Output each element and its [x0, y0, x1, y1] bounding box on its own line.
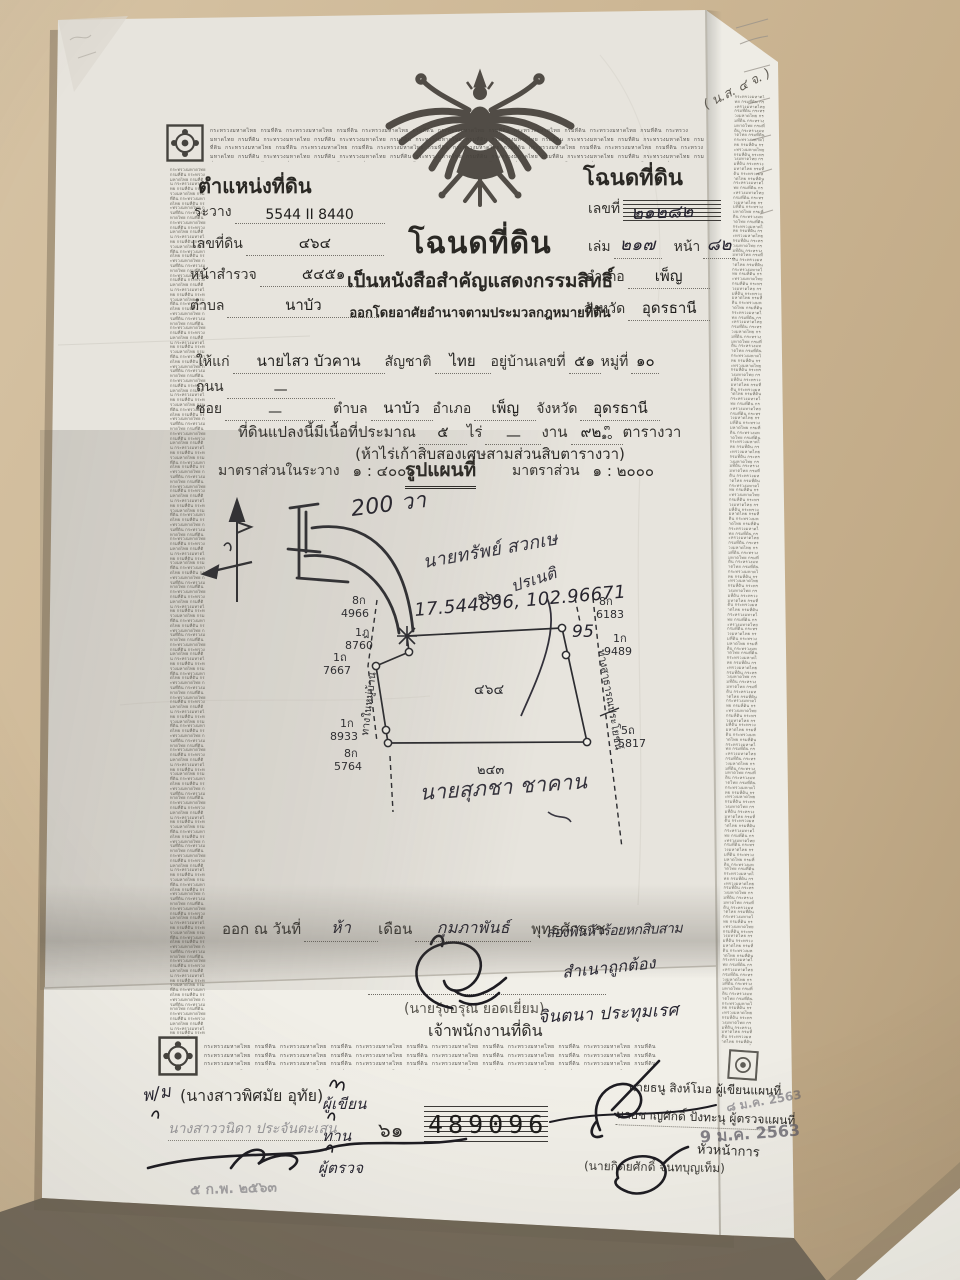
- marker-code: 8ก: [599, 595, 613, 608]
- writer-role: ผู้เขียน: [322, 1092, 367, 1116]
- map-neighbor-bottom: นายสุภชา ชาคาน: [419, 769, 589, 806]
- parcel-no-label: เลขที่ดิน: [192, 233, 246, 256]
- wa-fraction: ๓๑๐: [601, 424, 612, 441]
- rawang-label: ระวาง: [194, 201, 235, 224]
- tambon-label: ตำบล: [325, 398, 370, 421]
- issue-month-label: เดือน: [378, 917, 415, 942]
- deed-no-label: เลขที่: [588, 198, 623, 221]
- wa-frac-den: ๑๐: [601, 433, 612, 442]
- grant-to-label: ให้แก่: [196, 351, 233, 374]
- volume-label: เล่ม: [588, 236, 614, 259]
- position-block-title: ตำแหน่งที่ดิน: [198, 170, 312, 202]
- chief-role: หัวหน้าการ: [696, 1138, 760, 1162]
- amphoe-top-value: เพ็ญ: [628, 264, 710, 289]
- corner-ornament-top-left: [166, 124, 204, 162]
- deed-block-title: โฉนดที่ดิน: [583, 160, 683, 195]
- corner-ornament-bottom-right: [727, 1049, 759, 1081]
- rawang-value: 5544 II 8440: [235, 207, 385, 224]
- marker-code: 1ฎ: [355, 626, 369, 639]
- marker-code: 1ก: [340, 717, 354, 730]
- wa-int: ๙๒: [580, 423, 601, 441]
- marker-code: 1ก: [613, 632, 627, 645]
- inspector-role: ผู้ตรวจ: [318, 1156, 363, 1180]
- date-stamp-left: ๕ ก.พ. ๒๕๖๓: [190, 1176, 278, 1201]
- field-volume-page: เล่ม ๒๑๗ หน้า ๘๒: [588, 231, 735, 259]
- corner-x-mark: [397, 626, 417, 646]
- page-value: ๘๒: [703, 231, 735, 259]
- deed-no-ruled-box: ๒๑๒๘๒: [623, 200, 721, 221]
- corner-ornament-bottom-left: [158, 1036, 198, 1076]
- issue-month: กุมภาพันธ์: [415, 916, 531, 942]
- border-bottom-microtext: กระทรวงมหาดไทย กรมที่ดิน กระทรวงมหาดไทย …: [204, 1043, 674, 1070]
- moo-label: หมู่ที่: [601, 351, 632, 374]
- road-right-label: ทางสาธารณประโยชน์: [595, 648, 626, 751]
- survey-map: 200 วา นายทรัพย์ สวกเษ ปรเนติ 17.544896,…: [190, 475, 660, 870]
- soi-line: ซอย — ตำบล นาบัว อำเภอ เพ็ญ จังหวัด อุดร…: [196, 396, 660, 421]
- page-label: หน้า: [662, 236, 704, 259]
- volume-value: ๒๑๗: [614, 231, 662, 259]
- soi-value: —: [225, 404, 325, 421]
- marker-code: 1ถ: [333, 651, 347, 664]
- grantee-name: นายไสว บัวคาน: [233, 349, 385, 374]
- issue-day: ห้า: [304, 916, 378, 942]
- field-deed-no: เลขที่ ๒๑๒๘๒: [588, 198, 721, 221]
- plot-number-top: ๑๖๐: [477, 589, 502, 604]
- officer-name: (นายรุ่งอรุณ ยอดเยี่ยม): [404, 998, 544, 1020]
- garuda-emblem: [365, 68, 595, 210]
- issue-prefix: ออก ณ วันที่: [222, 917, 304, 942]
- soi-label: ซอย: [196, 398, 225, 421]
- marker-num: 7667: [323, 664, 351, 677]
- field-parcel-no: เลขที่ดิน ๔๖๔: [192, 231, 384, 256]
- checker-role: ทาน: [322, 1124, 351, 1148]
- document-title: โฉนดที่ดิน: [370, 220, 590, 267]
- serial-number: 489096: [428, 1110, 548, 1139]
- pen-stroke: [521, 598, 551, 716]
- photo-of-land-deed: กระทรวงมหาดไทย กรมที่ดิน กระทรวงมหาดไทย …: [0, 0, 960, 1280]
- map-distance-note: 200 วา: [350, 488, 428, 522]
- document-subtitle-1: เป็นหนังสือสำคัญแสดงกรรมสิทธิ์: [320, 266, 640, 296]
- province-top-value: อุดรธานี: [628, 296, 710, 321]
- tambon-top-label: ตำบล: [190, 295, 227, 318]
- book-number: ๖๑: [378, 1114, 403, 1146]
- officer-signature-line: [368, 994, 606, 995]
- plot-number-center: ๔๖๔: [474, 682, 504, 698]
- tambon-value: นาบัว: [371, 396, 433, 421]
- marker-num: 6183: [596, 608, 624, 621]
- marker-num: 5764: [334, 760, 362, 773]
- map-gps-coords-extra: 95: [572, 622, 594, 642]
- address-value: ๕๑: [569, 349, 601, 374]
- issue-year: สองพันห้าร้อยหกสิบสาม: [546, 918, 683, 945]
- map-neighbor-top-1: นายทรัพย์ สวกเษ: [421, 528, 560, 573]
- chief-name: (นายกิตยศักดิ์ จันทบุญเท็ม): [584, 1157, 725, 1178]
- marker-code: 8ก: [344, 747, 358, 760]
- writer-initials: พ/ม: [140, 1078, 173, 1110]
- nationality-label: สัญชาติ: [385, 351, 435, 374]
- province-label: จังหวัด: [536, 398, 580, 421]
- marker-num: 4966: [341, 607, 369, 620]
- serial-ruled-box: 489096: [424, 1106, 548, 1144]
- issue-line: ออก ณ วันที่ ห้า เดือน กุมภาพันธ์ พุทธศั…: [222, 916, 683, 942]
- moo-value: ๑๐: [631, 349, 659, 374]
- checker-name: นางสาววนิดา ประจันตะเสน: [168, 1118, 337, 1141]
- amphoe-label: อำเภอ: [433, 398, 475, 421]
- grant-line: ให้แก่ นายไสว บัวคาน สัญชาติ ไทย อยู่บ้า…: [196, 349, 659, 374]
- writer-name: (นางสาวพิศมัย อุทัย): [180, 1084, 323, 1109]
- field-rawang: ระวาง 5544 II 8440: [194, 201, 385, 224]
- amphoe-value: เพ็ญ: [474, 396, 536, 421]
- garuda-crown: [474, 70, 486, 87]
- deed-no-value: ๒๑๒๘๒: [631, 196, 694, 227]
- marker-num: 8760: [345, 639, 373, 652]
- nationality-value: ไทย: [435, 349, 491, 374]
- officer-title: เจ้าพนักงานที่ดิน: [428, 1019, 543, 1044]
- north-arrow: [203, 500, 252, 602]
- document-subtitle-2: ออกโดยอาศัยอำนาจตามประมวลกฎหมายที่ดิน: [320, 302, 640, 323]
- marker-num: 8933: [330, 730, 358, 743]
- marker-code: 8ก: [352, 594, 366, 607]
- pen-squiggle: [548, 812, 571, 822]
- survey-page-label: หน้าสำรวจ: [190, 264, 260, 287]
- parcel-no-value: ๔๖๔: [246, 231, 384, 256]
- address-label: อยู่บ้านเลขที่: [491, 351, 569, 374]
- province-value: อุดรธานี: [580, 396, 660, 421]
